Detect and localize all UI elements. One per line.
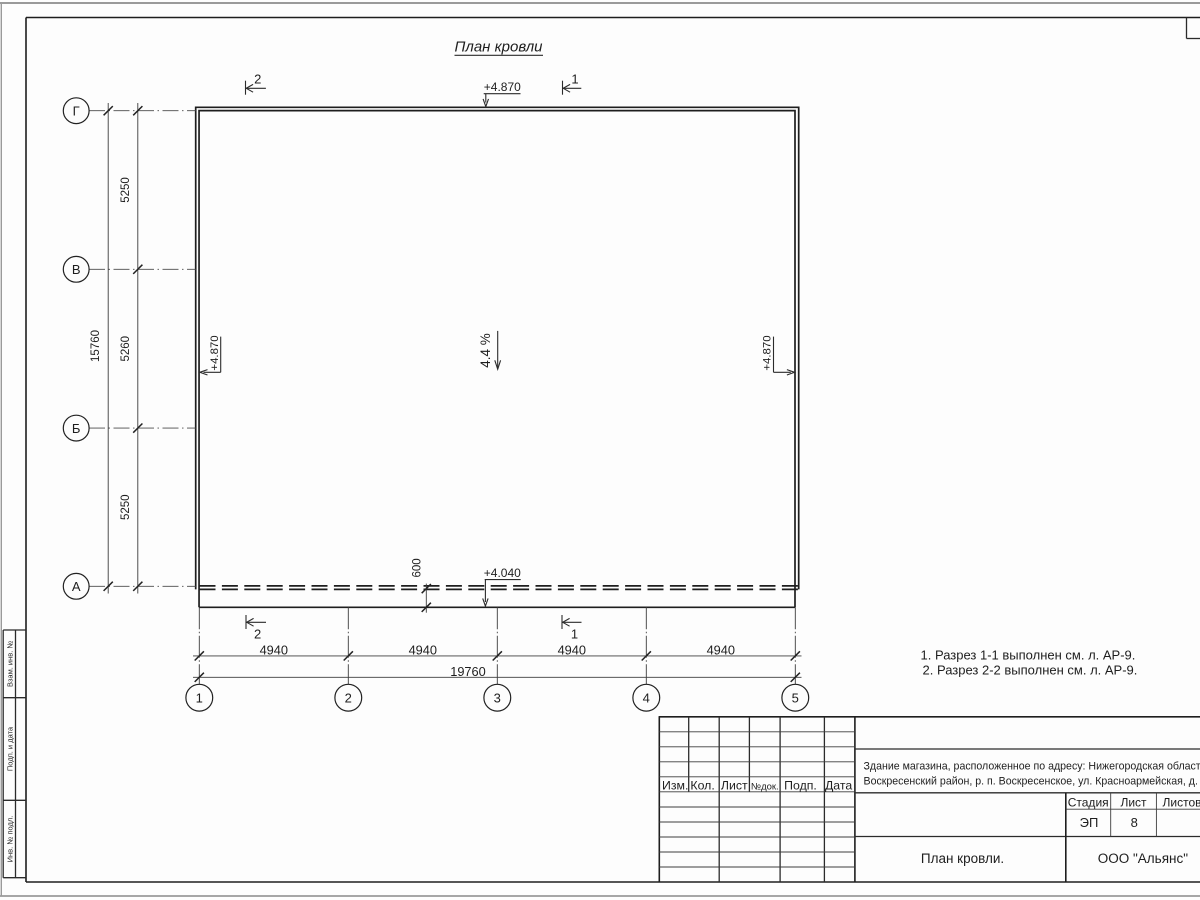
svg-text:Воскресенский район, р. п. Вос: Воскресенский район, р. п. Воскресенское…: [864, 775, 1200, 787]
svg-text:15760: 15760: [90, 330, 102, 362]
svg-text:600: 600: [411, 558, 423, 577]
svg-text:4940: 4940: [260, 642, 288, 657]
svg-text:Изм.: Изм.: [662, 779, 688, 793]
svg-text:Дата: Дата: [825, 779, 852, 793]
svg-text:Инв. № подл.: Инв. № подл.: [5, 816, 14, 863]
svg-text:+4.870: +4.870: [484, 80, 521, 94]
svg-text:2. Разрез 2-2 выполнен см. л.: 2. Разрез 2-2 выполнен см. л. АР-9.: [923, 662, 1138, 677]
svg-text:19760: 19760: [450, 664, 486, 679]
svg-text:В: В: [72, 262, 81, 277]
svg-text:Стадия: Стадия: [1068, 796, 1109, 810]
svg-text:4940: 4940: [409, 642, 437, 657]
svg-text:Листов: Листов: [1163, 796, 1200, 810]
svg-text:1: 1: [196, 690, 203, 705]
svg-text:3: 3: [494, 690, 501, 705]
svg-text:Г: Г: [73, 103, 80, 118]
svg-text:Кол.: Кол.: [690, 779, 714, 793]
svg-text:А: А: [72, 579, 81, 594]
svg-text:Здание магазина, расположенное: Здание магазина, расположенное по адресу…: [864, 760, 1200, 772]
svg-text:Лист: Лист: [721, 779, 748, 793]
svg-text:№док.: №док.: [751, 781, 779, 792]
svg-text:Б: Б: [72, 421, 81, 436]
svg-text:4940: 4940: [558, 642, 586, 657]
svg-text:2: 2: [254, 627, 261, 642]
svg-text:План кровли: План кровли: [455, 38, 544, 55]
svg-text:2: 2: [254, 71, 261, 86]
svg-text:1. Разрез 1-1 выполнен см. л.: 1. Разрез 1-1 выполнен см. л. АР-9.: [921, 648, 1136, 663]
svg-text:ООО "Альянс": ООО "Альянс": [1098, 851, 1188, 866]
svg-text:План кровли.: План кровли.: [921, 851, 1004, 866]
svg-text:1: 1: [571, 627, 578, 642]
svg-text:Лист: Лист: [1120, 796, 1147, 810]
svg-text:5260: 5260: [120, 336, 132, 362]
svg-text:Подп. и дата: Подп. и дата: [5, 726, 14, 771]
svg-text:Подп.: Подп.: [784, 779, 817, 793]
svg-text:ЭП: ЭП: [1080, 815, 1099, 830]
svg-text:5250: 5250: [120, 494, 132, 520]
svg-text:+4.870: +4.870: [762, 335, 774, 370]
svg-text:1: 1: [571, 71, 578, 86]
svg-text:5250: 5250: [120, 177, 132, 203]
svg-text:4940: 4940: [707, 642, 735, 657]
svg-text:4.4 %: 4.4 %: [478, 333, 493, 368]
svg-text:5: 5: [792, 690, 799, 705]
svg-text:2: 2: [345, 690, 352, 705]
svg-text:4: 4: [643, 690, 650, 705]
svg-text:8: 8: [1131, 815, 1138, 830]
svg-text:+4.040: +4.040: [484, 566, 521, 580]
svg-text:Взам. инв. №: Взам. инв. №: [5, 641, 14, 687]
svg-text:+4.870: +4.870: [209, 335, 221, 370]
